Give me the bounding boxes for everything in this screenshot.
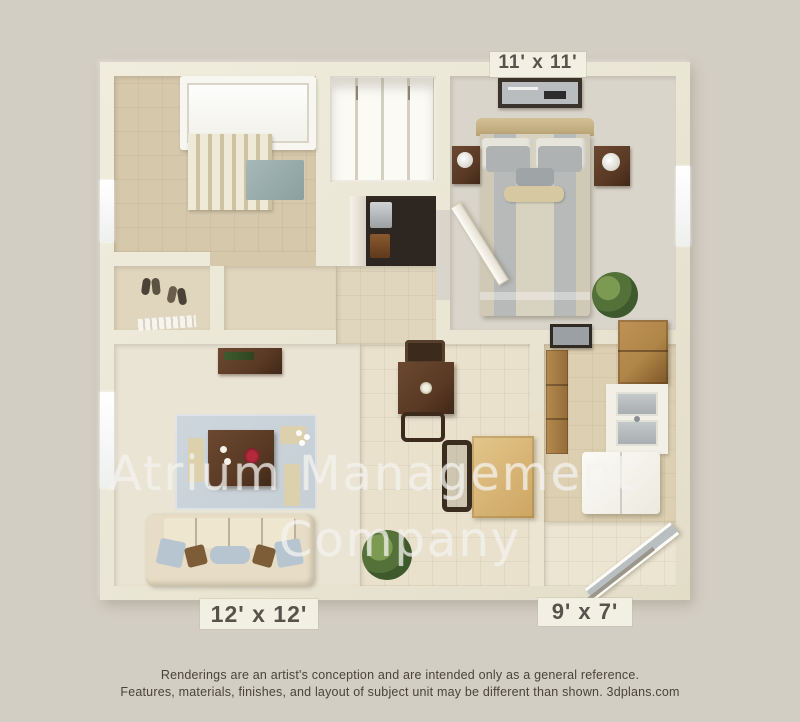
bedroom-wall-art	[498, 78, 582, 108]
sink-basin	[616, 420, 658, 446]
dining-plant	[362, 530, 412, 580]
bifold-handle	[356, 86, 358, 100]
table-centerpiece	[420, 382, 432, 394]
bath-mat	[246, 160, 304, 200]
pillow-accent	[504, 186, 564, 202]
dining-table	[398, 362, 454, 414]
entry-opening	[530, 522, 544, 586]
floor-plan	[100, 62, 690, 600]
sink-basin	[616, 392, 658, 416]
bedroom-dimensions-label: 11' x 11'	[490, 52, 586, 77]
bathroom-window	[100, 180, 114, 242]
shoe	[166, 285, 177, 303]
refrigerator	[582, 452, 660, 514]
disclaimer: Renderings are an artist's conception an…	[0, 667, 800, 701]
dining-chair-top	[405, 340, 445, 364]
bifold-doors	[332, 78, 434, 180]
bar-chair	[442, 440, 472, 512]
pillow-small	[516, 168, 554, 186]
bench-left	[188, 438, 204, 482]
white-flowers	[296, 430, 302, 436]
art-detail	[508, 87, 538, 90]
pantry-side-panel	[350, 196, 366, 266]
pillow-blue-center	[210, 546, 250, 564]
hallway-floor	[224, 266, 336, 330]
bedroom-window	[676, 166, 690, 246]
fridge-seam	[620, 452, 622, 514]
hallway-passage-floor	[336, 266, 436, 344]
nightstand-right	[594, 146, 630, 186]
books	[224, 352, 254, 360]
shoe-pairs	[140, 276, 196, 310]
shoe	[177, 287, 188, 305]
pantry-item-gray	[370, 202, 392, 228]
bathroom-doorway	[210, 252, 316, 266]
bench-right	[284, 464, 300, 506]
shoe	[151, 278, 161, 296]
drawer-seam	[546, 384, 568, 386]
upper-cabinets	[618, 320, 668, 384]
disclaimer-line-1: Renderings are an artist's conception an…	[0, 667, 800, 684]
breakfast-bar	[472, 436, 534, 518]
art-detail	[544, 91, 566, 99]
living-room-window	[100, 392, 114, 488]
lamp	[602, 153, 620, 171]
nightstand-left	[452, 146, 480, 184]
dining-chair-bottom	[401, 412, 445, 442]
cabinet-seam	[618, 350, 668, 352]
base-cabinets	[546, 350, 568, 454]
bedroom-doorway	[436, 210, 450, 300]
lamp	[457, 152, 473, 168]
pillow-blue	[274, 538, 304, 568]
faucet	[634, 416, 640, 422]
disclaimer-line-2: Features, materials, finishes, and layou…	[0, 684, 800, 701]
shoe	[141, 278, 151, 296]
kitchen-dimensions-label: 9' x 7'	[538, 598, 632, 626]
bed	[480, 134, 590, 316]
kitchen-wall-art	[550, 324, 592, 348]
floor-plan-image: 11' x 11' 12' x 12' 9' x 7' Atrium Manag…	[0, 0, 800, 722]
candle	[220, 446, 227, 453]
living-room-dimensions-label: 12' x 12'	[200, 599, 318, 629]
pillow-brown	[252, 544, 277, 569]
candle	[224, 458, 231, 465]
sofa	[146, 514, 314, 586]
sink-counter	[606, 384, 668, 454]
pillow-blue	[156, 538, 187, 569]
coffee-table	[208, 430, 274, 486]
tray-right-top	[280, 426, 306, 444]
bifold-handle	[408, 86, 410, 100]
duvet-fold	[480, 292, 590, 300]
drawer-seam	[546, 418, 568, 420]
pantry-item-brown	[370, 234, 390, 258]
console-table	[218, 348, 282, 374]
bedroom-plant	[592, 272, 638, 318]
red-flowers	[244, 448, 260, 464]
